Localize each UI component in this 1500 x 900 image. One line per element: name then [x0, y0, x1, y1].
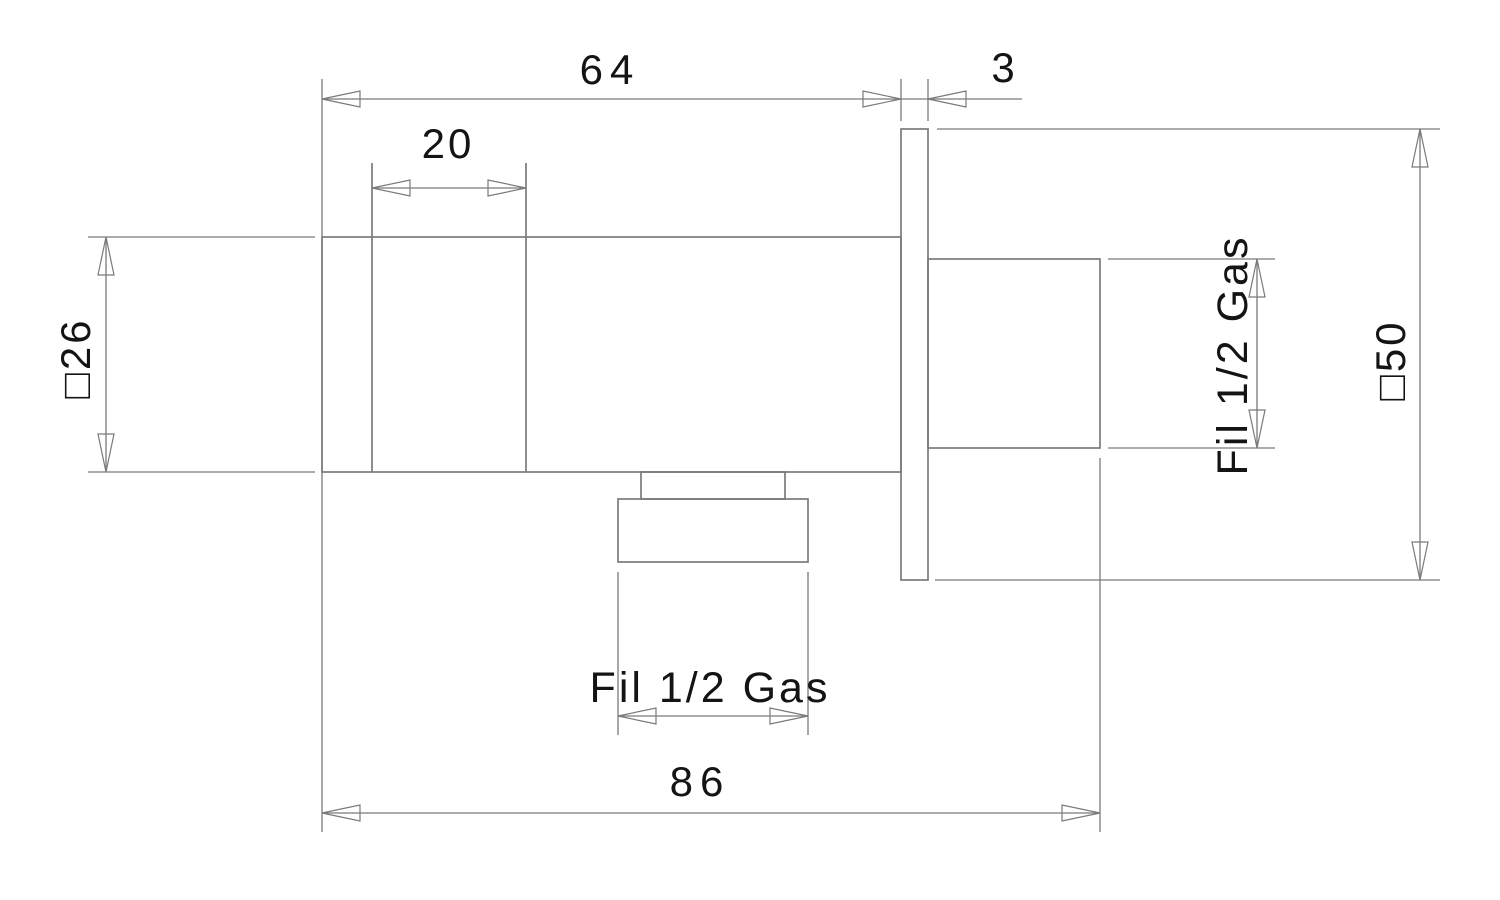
dimension-plate-thickness: 3	[928, 44, 1015, 121]
wall-plate-outline	[901, 129, 928, 580]
outlet-nut-outline	[618, 499, 808, 562]
dimension-body-length: 64	[322, 46, 1022, 121]
dimension-overall-length: 86	[322, 458, 1100, 832]
dim-label-sq26: □26	[52, 317, 99, 398]
dimension-inlet-thread: Fil 1/2 Gas	[1108, 235, 1275, 476]
outlet-neck-outline	[641, 472, 785, 499]
dim-label-86: 86	[670, 758, 731, 805]
dim-label-sq50: □50	[1367, 319, 1414, 400]
dim-label-3: 3	[991, 44, 1014, 91]
technical-drawing-valve: 64 3 20 □26 □50 Fil 1/2 Gas	[0, 0, 1500, 900]
valve-side-view	[322, 79, 1100, 832]
dimension-body-square: □26	[52, 237, 315, 472]
dimension-plate-square: □50	[935, 129, 1440, 580]
inlet-thread-label: Fil 1/2 Gas	[1209, 235, 1257, 476]
dim-label-64: 64	[580, 46, 641, 93]
dimension-outlet-thread: Fil 1/2 Gas	[590, 572, 831, 735]
dimension-bonnet-width: 20	[372, 120, 526, 196]
dim-label-20: 20	[422, 120, 475, 167]
inlet-fitting-outline	[928, 259, 1100, 448]
outlet-thread-label: Fil 1/2 Gas	[590, 664, 831, 712]
valve-body-outline	[322, 237, 901, 472]
